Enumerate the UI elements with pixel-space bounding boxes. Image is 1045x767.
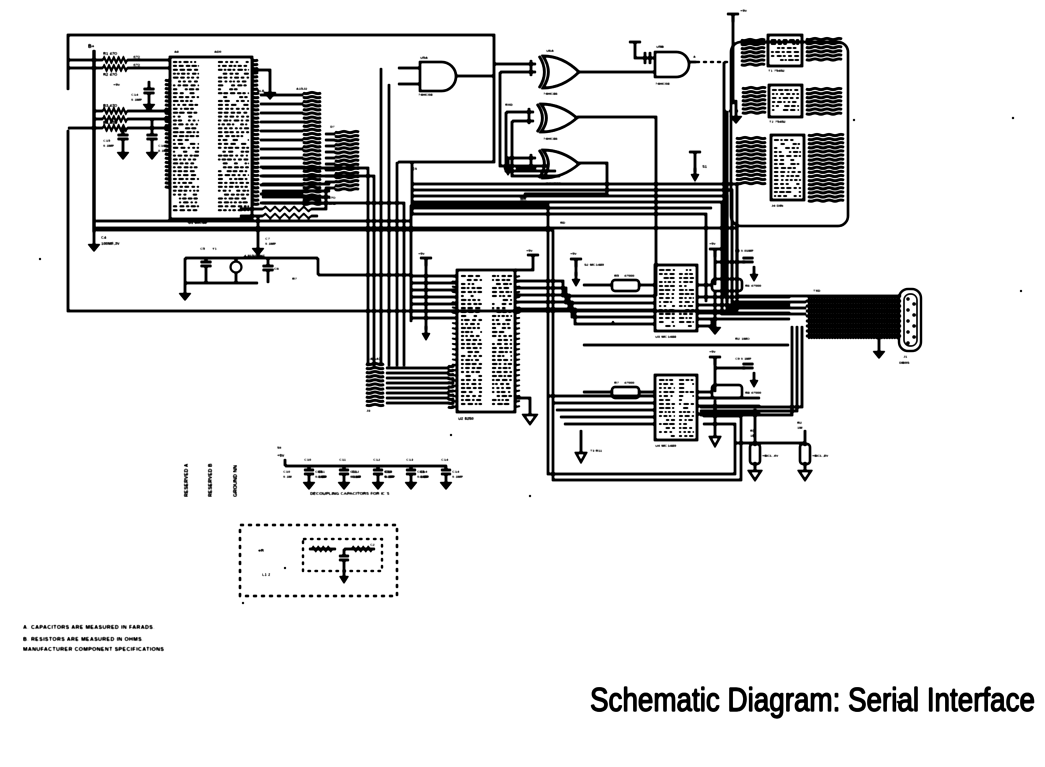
svg-text:U2 8250: U2 8250 [458, 416, 475, 421]
svg-text:+5V: +5V [709, 350, 716, 354]
svg-text:+5V: +5V [570, 252, 577, 256]
svg-text:C4: C4 [101, 235, 107, 240]
svg-text:74HC86: 74HC86 [543, 136, 558, 141]
svg-text:+5V: +5V [277, 453, 285, 458]
svg-text:1M: 1M [750, 433, 756, 438]
svg-text:R1 47O: R1 47O [103, 51, 118, 56]
svg-text:Y1: Y1 [212, 246, 218, 251]
svg-text:DB9S: DB9S [899, 360, 910, 365]
svg-text:+5V: +5V [418, 252, 425, 256]
svg-text:RESERVED A: RESERVED A [184, 463, 190, 497]
svg-text:0.1M: 0.1M [420, 474, 430, 479]
svg-text:J3: J3 [366, 408, 371, 413]
svg-text:J1: J1 [903, 354, 908, 359]
svg-text:U5A: U5A [420, 55, 428, 60]
svg-text:R9 47O: R9 47O [322, 201, 336, 206]
svg-text:RXD: RXD [505, 103, 513, 107]
svg-text:100MF,3V: 100MF,3V [101, 241, 120, 246]
svg-text:4.9152MHZ: 4.9152MHZ [244, 253, 265, 258]
svg-text:+BCL,4V: +BCL,4V [762, 453, 779, 458]
svg-text:C6: C6 [274, 266, 280, 271]
svg-text:R8 47O: R8 47O [322, 195, 336, 200]
svg-text:0.1M: 0.1M [385, 474, 395, 479]
svg-text:L1 2: L1 2 [262, 572, 271, 577]
svg-text:0.1M: 0.1M [318, 474, 328, 479]
svg-text:J4 DIN: J4 DIN [771, 203, 784, 208]
svg-text:A. CAPACITORS ARE MEASURED IN: A. CAPACITORS ARE MEASURED IN FARADS. [23, 625, 155, 631]
svg-text:C5: C5 [200, 246, 206, 251]
svg-text:+5V: +5V [709, 242, 716, 246]
svg-text:0.1MF: 0.1MF [103, 143, 115, 148]
svg-text:A15: A15 [296, 87, 303, 91]
svg-text:47000: 47000 [624, 274, 635, 278]
svg-text:DECOUPLING CAPACITORS FOR IC`S: DECOUPLING CAPACITORS FOR IC`S [310, 491, 390, 496]
svg-text:R3 47O: R3 47O [103, 103, 118, 108]
svg-text:R7: R7 [292, 276, 298, 281]
svg-text:1M: 1M [797, 425, 803, 430]
svg-text:CS: CS [412, 167, 418, 171]
svg-text:+5V: +5V [740, 8, 748, 13]
svg-text:R5: R5 [614, 273, 620, 278]
svg-text:C11: C11 [339, 457, 347, 462]
svg-text:U5B: U5B [656, 44, 664, 49]
svg-text:C14: C14 [441, 457, 449, 462]
svg-text:R7: R7 [614, 380, 620, 385]
svg-text:GROUND NN: GROUND NN [233, 465, 239, 497]
svg-text:C2: C2 [370, 543, 375, 547]
svg-text:0.1MF: 0.1MF [131, 97, 143, 102]
svg-text:0.1M: 0.1M [283, 474, 293, 479]
svg-text:A: A [693, 54, 696, 59]
svg-text:R6 47000: R6 47000 [745, 284, 761, 288]
svg-text:0.1M: 0.1M [352, 474, 362, 479]
svg-text:5X: 5X [277, 446, 282, 450]
svg-text:C9 0.1MF: C9 0.1MF [735, 357, 752, 361]
svg-text:ALE: ALE [257, 89, 265, 93]
svg-text:+5V: +5V [113, 82, 121, 87]
svg-text:Schematic Diagram: Serial Int: Schematic Diagram: Serial Interface [590, 682, 1035, 719]
svg-text:+BCL,8V: +BCL,8V [812, 453, 829, 458]
svg-text:C13: C13 [406, 457, 414, 462]
svg-text:74HC08: 74HC08 [418, 92, 433, 97]
svg-text:S1: S1 [702, 164, 708, 169]
svg-text:B. RESISTORS ARE MEASURED IN O: B. RESISTORS ARE MEASURED IN OHMS. [23, 637, 144, 643]
svg-text:C12: C12 [373, 457, 381, 462]
svg-text:47O: 47O [133, 63, 140, 67]
svg-text:C10: C10 [304, 457, 312, 462]
svg-text:T1 75452: T1 75452 [768, 68, 786, 73]
svg-text:0.1MF: 0.1MF [452, 474, 464, 479]
svg-text:U6A: U6A [546, 48, 554, 53]
svg-text:R8 47000: R8 47000 [745, 391, 761, 395]
svg-text:TXD: TXD [813, 289, 821, 293]
svg-text:J2: J2 [303, 86, 308, 91]
svg-text:A8: A8 [174, 50, 179, 54]
svg-text:R2 1MO: R2 1MO [735, 336, 750, 341]
svg-text:B+: B+ [88, 44, 95, 50]
svg-text:0.1MF: 0.1MF [265, 241, 277, 246]
svg-text:74HC86: 74HC86 [543, 91, 558, 96]
svg-text:U3 MC1488: U3 MC1488 [655, 334, 677, 339]
svg-text:47000: 47000 [624, 381, 635, 385]
svg-text:MANUFACTURER COMPONENT SPECIFI: MANUFACTURER COMPONENT SPECIFICATIONS [23, 647, 164, 653]
svg-text:47O: 47O [133, 55, 140, 59]
svg-text:RD: RD [560, 221, 566, 225]
svg-text:RESERVED B: RESERVED B [208, 463, 214, 497]
svg-text:R4 47O: R4 47O [103, 120, 118, 125]
svg-text:S2 MC1489: S2 MC1489 [584, 263, 604, 267]
svg-text:D7: D7 [330, 125, 335, 129]
svg-text:+5V: +5V [526, 249, 533, 253]
svg-text:●R: ●R [258, 548, 265, 553]
svg-text:74HC08: 74HC08 [655, 81, 670, 86]
svg-text:U4 MC1489: U4 MC1489 [655, 443, 677, 448]
svg-text:R2 47O: R2 47O [103, 72, 118, 77]
svg-text:T2 75452: T2 75452 [769, 119, 787, 124]
svg-text:AD0: AD0 [214, 50, 222, 54]
svg-text:A0-A7: A0-A7 [370, 357, 381, 361]
svg-text:C8 0.01MF: C8 0.01MF [735, 249, 754, 253]
svg-text:T3 R11: T3 R11 [590, 449, 602, 453]
svg-text:WR: WR [520, 197, 527, 201]
